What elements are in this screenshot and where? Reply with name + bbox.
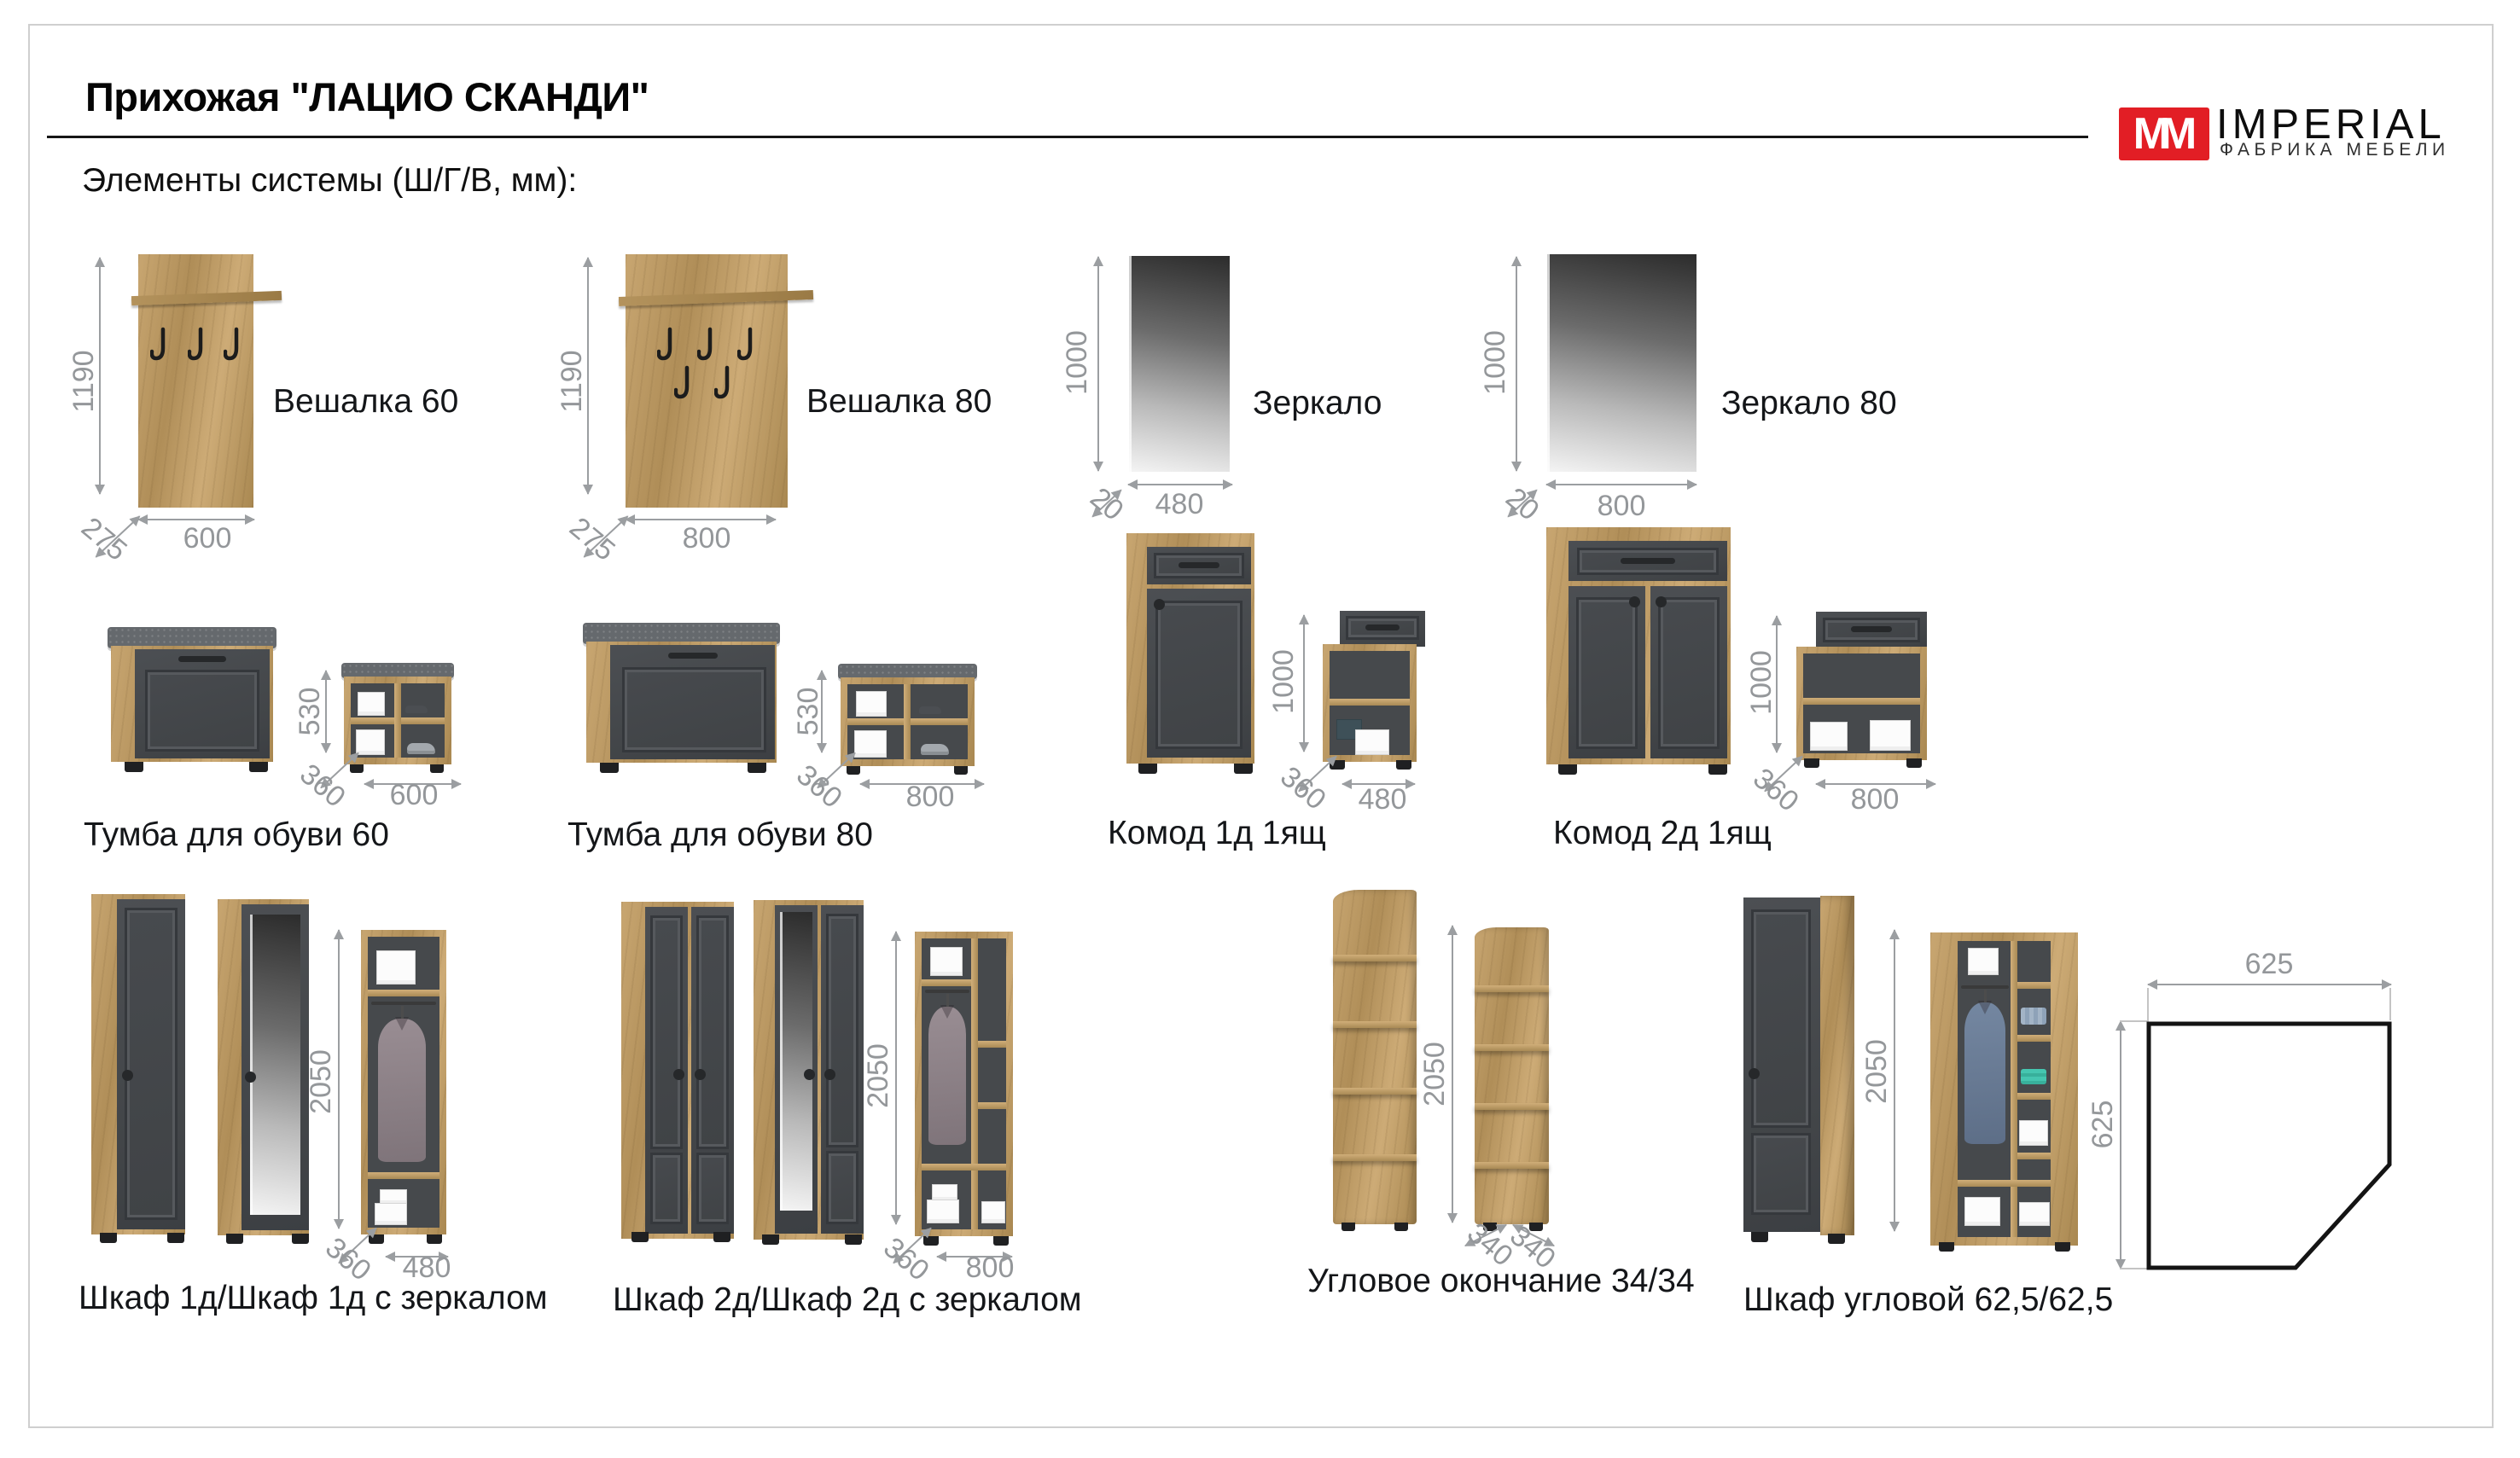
door-panel bbox=[1751, 1133, 1811, 1215]
door-panel bbox=[650, 915, 683, 1149]
wardrobe-mirror-door bbox=[242, 904, 309, 1230]
extension-line bbox=[2389, 988, 2391, 1020]
corner-wardrobe-side bbox=[1820, 896, 1854, 1235]
title-divider bbox=[47, 136, 2088, 138]
hanging-rail bbox=[925, 990, 969, 993]
shelf bbox=[922, 1164, 1006, 1170]
open-drawer bbox=[1340, 611, 1425, 647]
product-label: Зеркало 80 bbox=[1721, 385, 1897, 422]
width-dim: 800 bbox=[1838, 784, 1912, 815]
product-label: Шкаф 2д/Шкаф 2д с зеркалом bbox=[613, 1281, 1082, 1319]
storage-box bbox=[1964, 1197, 2000, 1226]
foot bbox=[762, 1234, 779, 1245]
shelf bbox=[2017, 1035, 2051, 1042]
cabinet-interior bbox=[351, 683, 445, 758]
height-arrow bbox=[1452, 926, 1453, 1223]
storage-box bbox=[1968, 948, 1999, 975]
drawer-handle bbox=[1365, 624, 1400, 630]
storage-box bbox=[981, 1201, 1005, 1223]
cabinet-interior bbox=[1803, 653, 1920, 753]
coat-hook-icon bbox=[714, 365, 733, 404]
drawer-front bbox=[1147, 547, 1251, 584]
product-label: Шкаф 1д/Шкаф 1д с зеркалом bbox=[79, 1280, 548, 1317]
width-dim: 480 bbox=[1346, 784, 1419, 815]
door-panel bbox=[622, 667, 766, 752]
foot bbox=[600, 763, 619, 773]
storage-box bbox=[376, 950, 416, 985]
open-cabinet bbox=[1323, 644, 1417, 762]
foot bbox=[1828, 1234, 1845, 1244]
width-dim: 800 bbox=[1585, 491, 1658, 521]
divider bbox=[971, 938, 978, 1229]
slippers bbox=[405, 706, 428, 713]
door-knob bbox=[673, 1069, 684, 1080]
cabinet-interior bbox=[847, 684, 968, 759]
foot bbox=[923, 1236, 939, 1246]
product-label: Вешалка 60 bbox=[273, 383, 458, 421]
divider bbox=[904, 684, 911, 759]
open-drawer bbox=[1816, 612, 1927, 649]
door-mirror bbox=[250, 915, 300, 1215]
product-label: Комод 1д 1ящ bbox=[1108, 815, 1326, 852]
product-label: Тумба для обуви 80 bbox=[567, 816, 873, 854]
wardrobe-mirror-door bbox=[775, 905, 818, 1234]
shelf bbox=[1475, 1162, 1549, 1169]
corner-shelf-unit bbox=[1333, 890, 1417, 1224]
width-dim: 600 bbox=[171, 523, 244, 554]
height-dim: 1000 bbox=[1746, 614, 1777, 751]
open-cabinet bbox=[841, 677, 975, 766]
door-panel bbox=[696, 915, 729, 1149]
logo-mark-icon: MM bbox=[2119, 107, 2209, 160]
storage-box bbox=[1810, 722, 1848, 751]
foot bbox=[845, 1234, 862, 1245]
foot bbox=[748, 763, 766, 773]
foot bbox=[1708, 764, 1727, 775]
extension-line bbox=[2120, 1020, 2149, 1022]
width-arrow bbox=[1546, 484, 1696, 485]
height-arrow bbox=[1303, 615, 1305, 752]
storage-box bbox=[356, 729, 385, 755]
door-knob bbox=[1656, 596, 1667, 607]
sneakers bbox=[407, 743, 435, 754]
cabinet-interior bbox=[1330, 651, 1410, 755]
height-dim: 1190 bbox=[68, 313, 99, 450]
open-wardrobe bbox=[915, 932, 1013, 1236]
extension-line bbox=[2147, 988, 2149, 1020]
foot bbox=[427, 1234, 442, 1244]
door-panel bbox=[826, 914, 858, 1147]
height-dim: 1000 bbox=[1268, 613, 1299, 750]
door-panel bbox=[1658, 597, 1720, 749]
door-panel bbox=[650, 1153, 683, 1224]
width-dim: 600 bbox=[377, 780, 451, 810]
door-knob bbox=[1749, 1068, 1760, 1079]
product-label: Зеркало bbox=[1253, 385, 1382, 422]
foot bbox=[1341, 1223, 1355, 1231]
corner-wardrobe-top-view bbox=[2146, 1021, 2392, 1270]
foot bbox=[954, 766, 968, 775]
foot bbox=[1394, 1223, 1408, 1231]
clothes-stack bbox=[2021, 1069, 2046, 1084]
door-panel bbox=[696, 1153, 729, 1224]
height-dim: 1000 bbox=[1480, 294, 1510, 431]
foot bbox=[125, 762, 143, 772]
storage-box bbox=[927, 1200, 959, 1223]
shelf bbox=[978, 1041, 1006, 1048]
foot bbox=[993, 1236, 1009, 1246]
foot bbox=[167, 1233, 184, 1243]
storage-box bbox=[2019, 1202, 2050, 1226]
cabinet-door-left bbox=[1568, 586, 1645, 758]
drawer-handle bbox=[1179, 562, 1219, 568]
drawer-front bbox=[1568, 541, 1727, 581]
plan-width-arrow bbox=[2148, 984, 2391, 985]
door-handle bbox=[668, 653, 718, 659]
foot bbox=[1804, 758, 1819, 768]
width-arrow bbox=[138, 519, 254, 520]
height-dim: 1000 bbox=[1062, 294, 1092, 431]
height-arrow bbox=[895, 932, 897, 1224]
foot bbox=[430, 764, 444, 773]
foot bbox=[1558, 764, 1577, 775]
width-arrow bbox=[626, 519, 776, 520]
door-knob bbox=[1154, 599, 1165, 610]
foot bbox=[100, 1233, 117, 1243]
door-panel bbox=[1576, 597, 1638, 749]
shelf bbox=[1958, 1180, 2051, 1187]
shelf bbox=[1333, 1088, 1417, 1095]
shelf bbox=[368, 990, 439, 996]
foot bbox=[226, 1234, 243, 1244]
product-label: Угловое окончание 34/34 bbox=[1307, 1263, 1695, 1300]
cabinet-door-right bbox=[1650, 586, 1727, 758]
storage-box bbox=[856, 691, 887, 717]
foot bbox=[292, 1234, 309, 1244]
height-dim: 2050 bbox=[1419, 1006, 1450, 1142]
catalog-page: Прихожая "ЛАЦИО СКАНДИ" Элементы системы… bbox=[0, 0, 2520, 1458]
height-dim: 2050 bbox=[1861, 1003, 1892, 1140]
height-dim: 2050 bbox=[863, 1008, 893, 1144]
width-dim: 800 bbox=[893, 781, 967, 812]
wardrobe-door-left bbox=[645, 907, 688, 1234]
door-panel bbox=[1751, 909, 1811, 1128]
extension-line bbox=[2120, 1268, 2149, 1269]
coat-hook-icon bbox=[657, 327, 676, 366]
shelf bbox=[1333, 955, 1417, 961]
foot bbox=[1234, 764, 1253, 774]
shelf bbox=[2017, 1153, 2051, 1159]
shelf bbox=[1475, 1044, 1549, 1051]
plan-width-dim: 625 bbox=[2232, 949, 2306, 979]
coat bbox=[928, 1007, 966, 1145]
width-dim: 480 bbox=[1143, 489, 1216, 520]
cabinet-door bbox=[1147, 589, 1251, 758]
shelf bbox=[2017, 1093, 2051, 1100]
hanging-rail bbox=[1961, 985, 2009, 989]
shelf bbox=[922, 979, 971, 986]
coat bbox=[1964, 1002, 2005, 1144]
wardrobe-interior bbox=[922, 938, 1006, 1229]
wardrobe-door bbox=[117, 899, 185, 1229]
door-mirror bbox=[780, 912, 812, 1211]
divider bbox=[2011, 941, 2017, 1237]
coat-hook-icon bbox=[737, 327, 756, 366]
logo-tagline: ФАБРИКА МЕБЕЛИ bbox=[2220, 140, 2450, 160]
plan-depth-dim: 625 bbox=[2087, 1056, 2118, 1193]
storage-box bbox=[1355, 729, 1389, 755]
storage-box bbox=[1870, 720, 1911, 751]
storage-box bbox=[932, 1184, 957, 1201]
coat-hook-icon bbox=[188, 327, 207, 366]
cabinet-door bbox=[135, 649, 270, 758]
height-arrow bbox=[1097, 257, 1099, 471]
foot bbox=[1396, 760, 1411, 770]
shelf bbox=[1330, 699, 1410, 706]
door-knob bbox=[1629, 596, 1640, 607]
height-dim: 2050 bbox=[306, 1014, 336, 1150]
shelf bbox=[1475, 985, 1549, 992]
storage-box bbox=[854, 730, 887, 758]
door-knob bbox=[122, 1070, 133, 1081]
open-cabinet bbox=[344, 677, 451, 764]
foot bbox=[1138, 764, 1157, 774]
open-corner-wardrobe bbox=[1930, 932, 2078, 1246]
clothes-stack bbox=[2021, 1008, 2046, 1025]
foot bbox=[1939, 1242, 1954, 1252]
shelf bbox=[1475, 1103, 1549, 1110]
door-knob bbox=[695, 1069, 706, 1080]
foot bbox=[1906, 758, 1922, 768]
foot bbox=[847, 766, 860, 775]
page-title: Прихожая "ЛАЦИО СКАНДИ" bbox=[85, 73, 649, 120]
open-cabinet bbox=[1796, 647, 1927, 760]
wardrobe-door-right bbox=[821, 905, 864, 1234]
sneakers bbox=[921, 744, 949, 755]
wardrobe-door-right bbox=[691, 907, 734, 1234]
foot bbox=[350, 764, 364, 773]
coat-hook-icon bbox=[674, 365, 693, 404]
door-panel bbox=[826, 1151, 858, 1224]
width-arrow bbox=[1128, 484, 1232, 485]
door-knob bbox=[824, 1069, 835, 1080]
height-arrow bbox=[1894, 930, 1895, 1231]
coat bbox=[378, 1019, 426, 1162]
shelf bbox=[2017, 982, 2051, 989]
storage-box bbox=[930, 947, 963, 976]
height-dim: 1190 bbox=[556, 313, 587, 450]
storage-box bbox=[375, 1203, 407, 1225]
corner-wardrobe-door bbox=[1743, 897, 1820, 1232]
slippers bbox=[919, 706, 941, 714]
product-label: Тумба для обуви 60 bbox=[84, 816, 389, 854]
foot bbox=[2055, 1242, 2070, 1252]
shelf bbox=[1333, 1021, 1417, 1028]
hanging-rail bbox=[371, 1002, 436, 1005]
foot bbox=[631, 1232, 649, 1242]
width-dim: 480 bbox=[390, 1252, 463, 1283]
height-arrow bbox=[1516, 257, 1517, 471]
foot bbox=[1751, 1232, 1768, 1242]
wardrobe-interior bbox=[1958, 941, 2051, 1237]
plan-depth-arrow bbox=[2120, 1021, 2121, 1269]
divider bbox=[394, 683, 401, 758]
coat-hook-icon bbox=[150, 327, 169, 366]
cabinet-door bbox=[610, 645, 775, 759]
height-arrow bbox=[338, 930, 340, 1229]
coat-hook-icon bbox=[224, 327, 242, 366]
shelf bbox=[978, 1102, 1006, 1109]
product-label: Шкаф угловой 62,5/62,5 bbox=[1743, 1281, 2113, 1319]
product-label: Комод 2д 1ящ bbox=[1553, 815, 1772, 852]
page-subtitle: Элементы системы (Ш/Г/В, мм): bbox=[82, 162, 577, 200]
mirror-panel bbox=[1547, 254, 1696, 472]
product-label: Вешалка 80 bbox=[806, 383, 992, 421]
corner-shelf-unit bbox=[1475, 927, 1549, 1224]
door-knob bbox=[804, 1069, 815, 1080]
door-panel bbox=[1155, 601, 1243, 749]
drawer-handle bbox=[1621, 558, 1675, 564]
foot bbox=[713, 1232, 730, 1242]
shelf bbox=[1333, 1154, 1417, 1161]
shelf bbox=[1803, 698, 1920, 705]
storage-box bbox=[2019, 1120, 2048, 1146]
foot bbox=[249, 762, 268, 772]
coat-hook-icon bbox=[697, 327, 716, 366]
wardrobe-interior bbox=[368, 937, 439, 1228]
door-handle bbox=[178, 656, 226, 662]
mirror-panel bbox=[1129, 256, 1230, 472]
door-knob bbox=[245, 1072, 256, 1083]
door-panel bbox=[125, 908, 178, 1220]
drawer-handle bbox=[1851, 626, 1892, 632]
storage-box bbox=[358, 692, 385, 716]
width-dim: 800 bbox=[670, 523, 743, 554]
open-wardrobe bbox=[361, 930, 446, 1234]
door-panel bbox=[145, 670, 259, 752]
shelf bbox=[368, 1172, 439, 1179]
width-dim: 800 bbox=[953, 1252, 1027, 1283]
